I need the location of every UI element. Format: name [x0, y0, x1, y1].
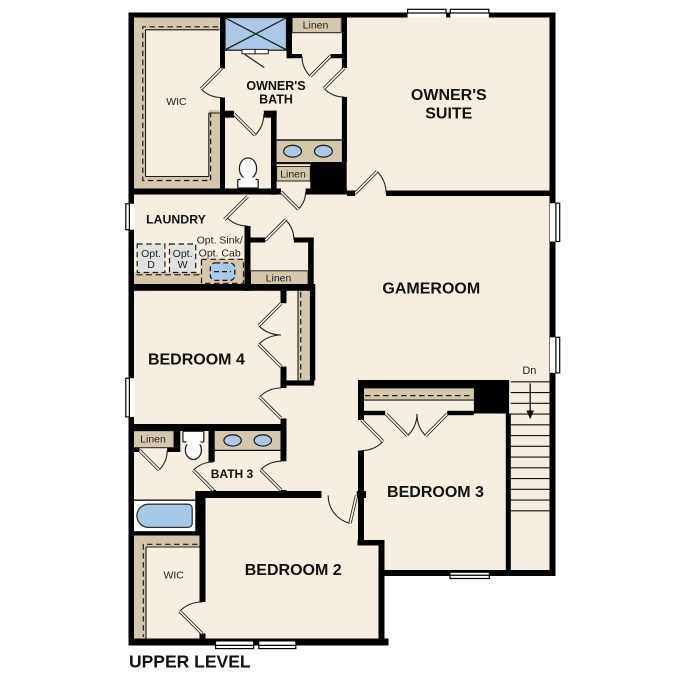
svg-text:W: W — [178, 259, 188, 271]
svg-text:BEDROOM 4: BEDROOM 4 — [148, 351, 245, 368]
svg-text:OWNER'S: OWNER'S — [411, 87, 487, 104]
svg-text:Linen: Linen — [140, 433, 166, 445]
svg-text:Opt. Cab: Opt. Cab — [199, 248, 241, 260]
svg-text:BEDROOM 2: BEDROOM 2 — [245, 562, 342, 579]
svg-text:BATH 3: BATH 3 — [211, 467, 254, 481]
svg-text:GAMEROOM: GAMEROOM — [382, 281, 480, 298]
svg-text:Dn: Dn — [522, 365, 536, 377]
svg-text:WIC: WIC — [163, 570, 184, 582]
svg-text:BEDROOM 3: BEDROOM 3 — [387, 484, 484, 501]
svg-text:BATH: BATH — [259, 93, 293, 107]
svg-text:Linen: Linen — [303, 20, 329, 32]
svg-text:Opt.: Opt. — [173, 248, 193, 260]
svg-text:Linen: Linen — [266, 273, 292, 285]
svg-text:WIC: WIC — [166, 96, 187, 108]
svg-text:Linen: Linen — [280, 169, 306, 181]
svg-text:Opt.: Opt. — [141, 248, 161, 260]
svg-text:SUITE: SUITE — [425, 105, 472, 122]
svg-text:Opt. Sink/: Opt. Sink/ — [197, 235, 243, 247]
svg-text:UPPER LEVEL: UPPER LEVEL — [129, 652, 251, 672]
svg-text:LAUNDRY: LAUNDRY — [146, 212, 206, 226]
svg-text:D: D — [147, 259, 155, 271]
svg-text:OWNER'S: OWNER'S — [246, 79, 305, 93]
